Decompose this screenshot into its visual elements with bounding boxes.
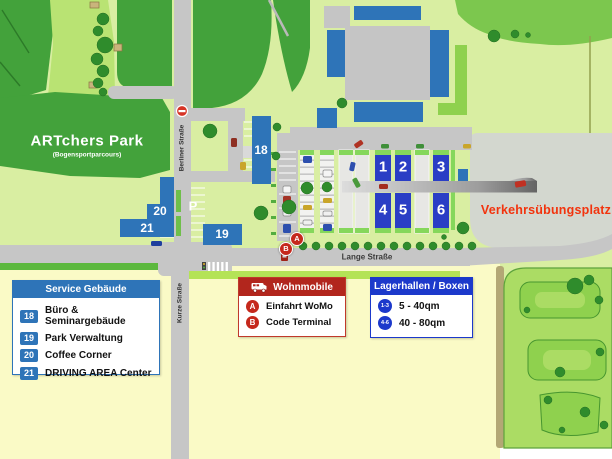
car-icon [463, 144, 471, 149]
park-title: ARTchers Park [31, 133, 144, 150]
lagerhallen-legend: Lagerhallen / Boxen 1-3 5 - 40qm 4-6 40 … [370, 277, 473, 338]
lange-strasse-road [205, 248, 470, 266]
field-area [117, 0, 172, 88]
legend-item-label: Coffee Corner [45, 350, 112, 361]
legend-item-label: Code Terminal [266, 317, 331, 328]
green-strip [455, 45, 467, 103]
legend-row: 19 Park Verwaltung [20, 332, 153, 345]
building-18-label: 18 [254, 143, 267, 157]
building-21-label: 21 [140, 221, 153, 235]
building-number-chip: 21 [20, 367, 38, 380]
hall-4-label: 4 [379, 202, 387, 219]
complex-building [324, 6, 350, 28]
hut-icon [114, 44, 122, 51]
field-area [193, 0, 272, 108]
service-legend: Service Gebäude 18 Büro & Seminargebäude… [12, 280, 160, 375]
motorhome-icon [251, 282, 268, 293]
car-icon [323, 211, 332, 216]
van-icon [323, 170, 332, 177]
building-19-label: 19 [215, 227, 228, 241]
park-subtitle: (Bogensportparcours) [53, 152, 122, 159]
site-map: ARTchers Park (Bogensportparcours) Berli… [0, 0, 612, 459]
building-20-wing [160, 177, 174, 204]
marker-b-chip: B [246, 316, 259, 329]
car-icon [231, 138, 237, 147]
building-number-chip: 19 [20, 332, 38, 345]
legend-item-label: Einfahrt WoMo [266, 301, 333, 312]
van-icon [323, 224, 332, 231]
green-strip [438, 103, 467, 115]
legend-item-label: Büro & Seminargebäude [45, 305, 153, 327]
traffic-light-icon [202, 262, 206, 270]
hedge-inner [535, 292, 585, 308]
complex-building [327, 30, 345, 77]
verge-strip [0, 263, 162, 270]
legend-row: 4-6 40 - 80qm [378, 316, 466, 330]
car-icon [416, 144, 424, 149]
legend-row: A Einfahrt WoMo [246, 300, 339, 313]
legend-row: B Code Terminal [246, 316, 339, 329]
access-road [108, 86, 178, 99]
parking-divider [176, 216, 181, 236]
complex-building [354, 102, 423, 122]
hall-5-label: 5 [399, 202, 407, 219]
parking-divider [176, 190, 181, 212]
complex-building [317, 108, 337, 128]
building-18-canopy [243, 146, 252, 158]
code-terminal-marker: B [279, 242, 293, 256]
garden-path [496, 266, 504, 448]
legend-row: 1-3 5 - 40qm [378, 299, 466, 313]
womo-entrance-marker: A [290, 232, 304, 246]
building-number-chip: 20 [20, 349, 38, 362]
legend-item-label: DRIVING AREA Center [45, 368, 152, 379]
west-road [0, 245, 165, 265]
berliner-strasse-label: Berliner Straße [179, 125, 186, 172]
no-entry-sign [177, 106, 188, 117]
map-terrain [0, 0, 612, 459]
service-legend-title: Service Gebäude [13, 281, 159, 298]
halls-1-3-chip: 1-3 [378, 299, 392, 313]
legend-item-label: 40 - 80qm [399, 318, 445, 329]
practice-ground-label: Verkehrsübungsplatz [481, 203, 611, 217]
hall-2-label: 2 [399, 159, 407, 176]
wohnmobile-legend-title: Wohnmobile [273, 282, 333, 293]
halls-4-6-chip: 4-6 [378, 316, 392, 330]
car-icon [303, 205, 312, 210]
van-icon [283, 224, 291, 233]
legend-item-label: Park Verwaltung [45, 333, 123, 344]
legend-item-label: 5 - 40qm [399, 301, 440, 312]
halls-center-road [342, 181, 537, 193]
building-number-chip: 18 [20, 310, 38, 323]
legend-row: 21 DRIVING AREA Center [20, 367, 153, 380]
meadow-area [455, 0, 612, 45]
complex-building [430, 30, 449, 97]
kurze-strasse-label: Kurze Straße [177, 283, 184, 323]
small-building [458, 169, 468, 181]
hall-3-label: 3 [437, 159, 445, 176]
parking-label: P [189, 199, 198, 214]
wohnmobile-legend: Wohnmobile A Einfahrt WoMo B Code Termin… [238, 277, 346, 337]
field-area [273, 0, 310, 92]
hedge-inner [543, 350, 591, 370]
legend-row: 18 Büro & Seminargebäude [20, 305, 153, 327]
hall-6-label: 6 [437, 202, 445, 219]
car-icon [323, 198, 332, 203]
van-icon [303, 156, 312, 163]
marker-a-chip: A [246, 300, 259, 313]
complex-building [345, 26, 430, 100]
car-icon [381, 144, 389, 149]
car-icon [240, 162, 246, 170]
building-20-label: 20 [153, 204, 166, 218]
lange-strasse-label: Lange Straße [342, 253, 393, 262]
legend-row: 20 Coffee Corner [20, 349, 153, 362]
hut-icon [90, 2, 99, 8]
van-icon [283, 186, 291, 193]
lagerhallen-legend-title: Lagerhallen / Boxen [371, 278, 472, 295]
bushes [271, 152, 276, 235]
hall-1-label: 1 [379, 159, 387, 176]
car-icon [379, 184, 388, 189]
complex-building [354, 6, 421, 20]
map-edge [500, 448, 612, 459]
car-icon [151, 241, 162, 246]
car-icon [303, 220, 312, 225]
